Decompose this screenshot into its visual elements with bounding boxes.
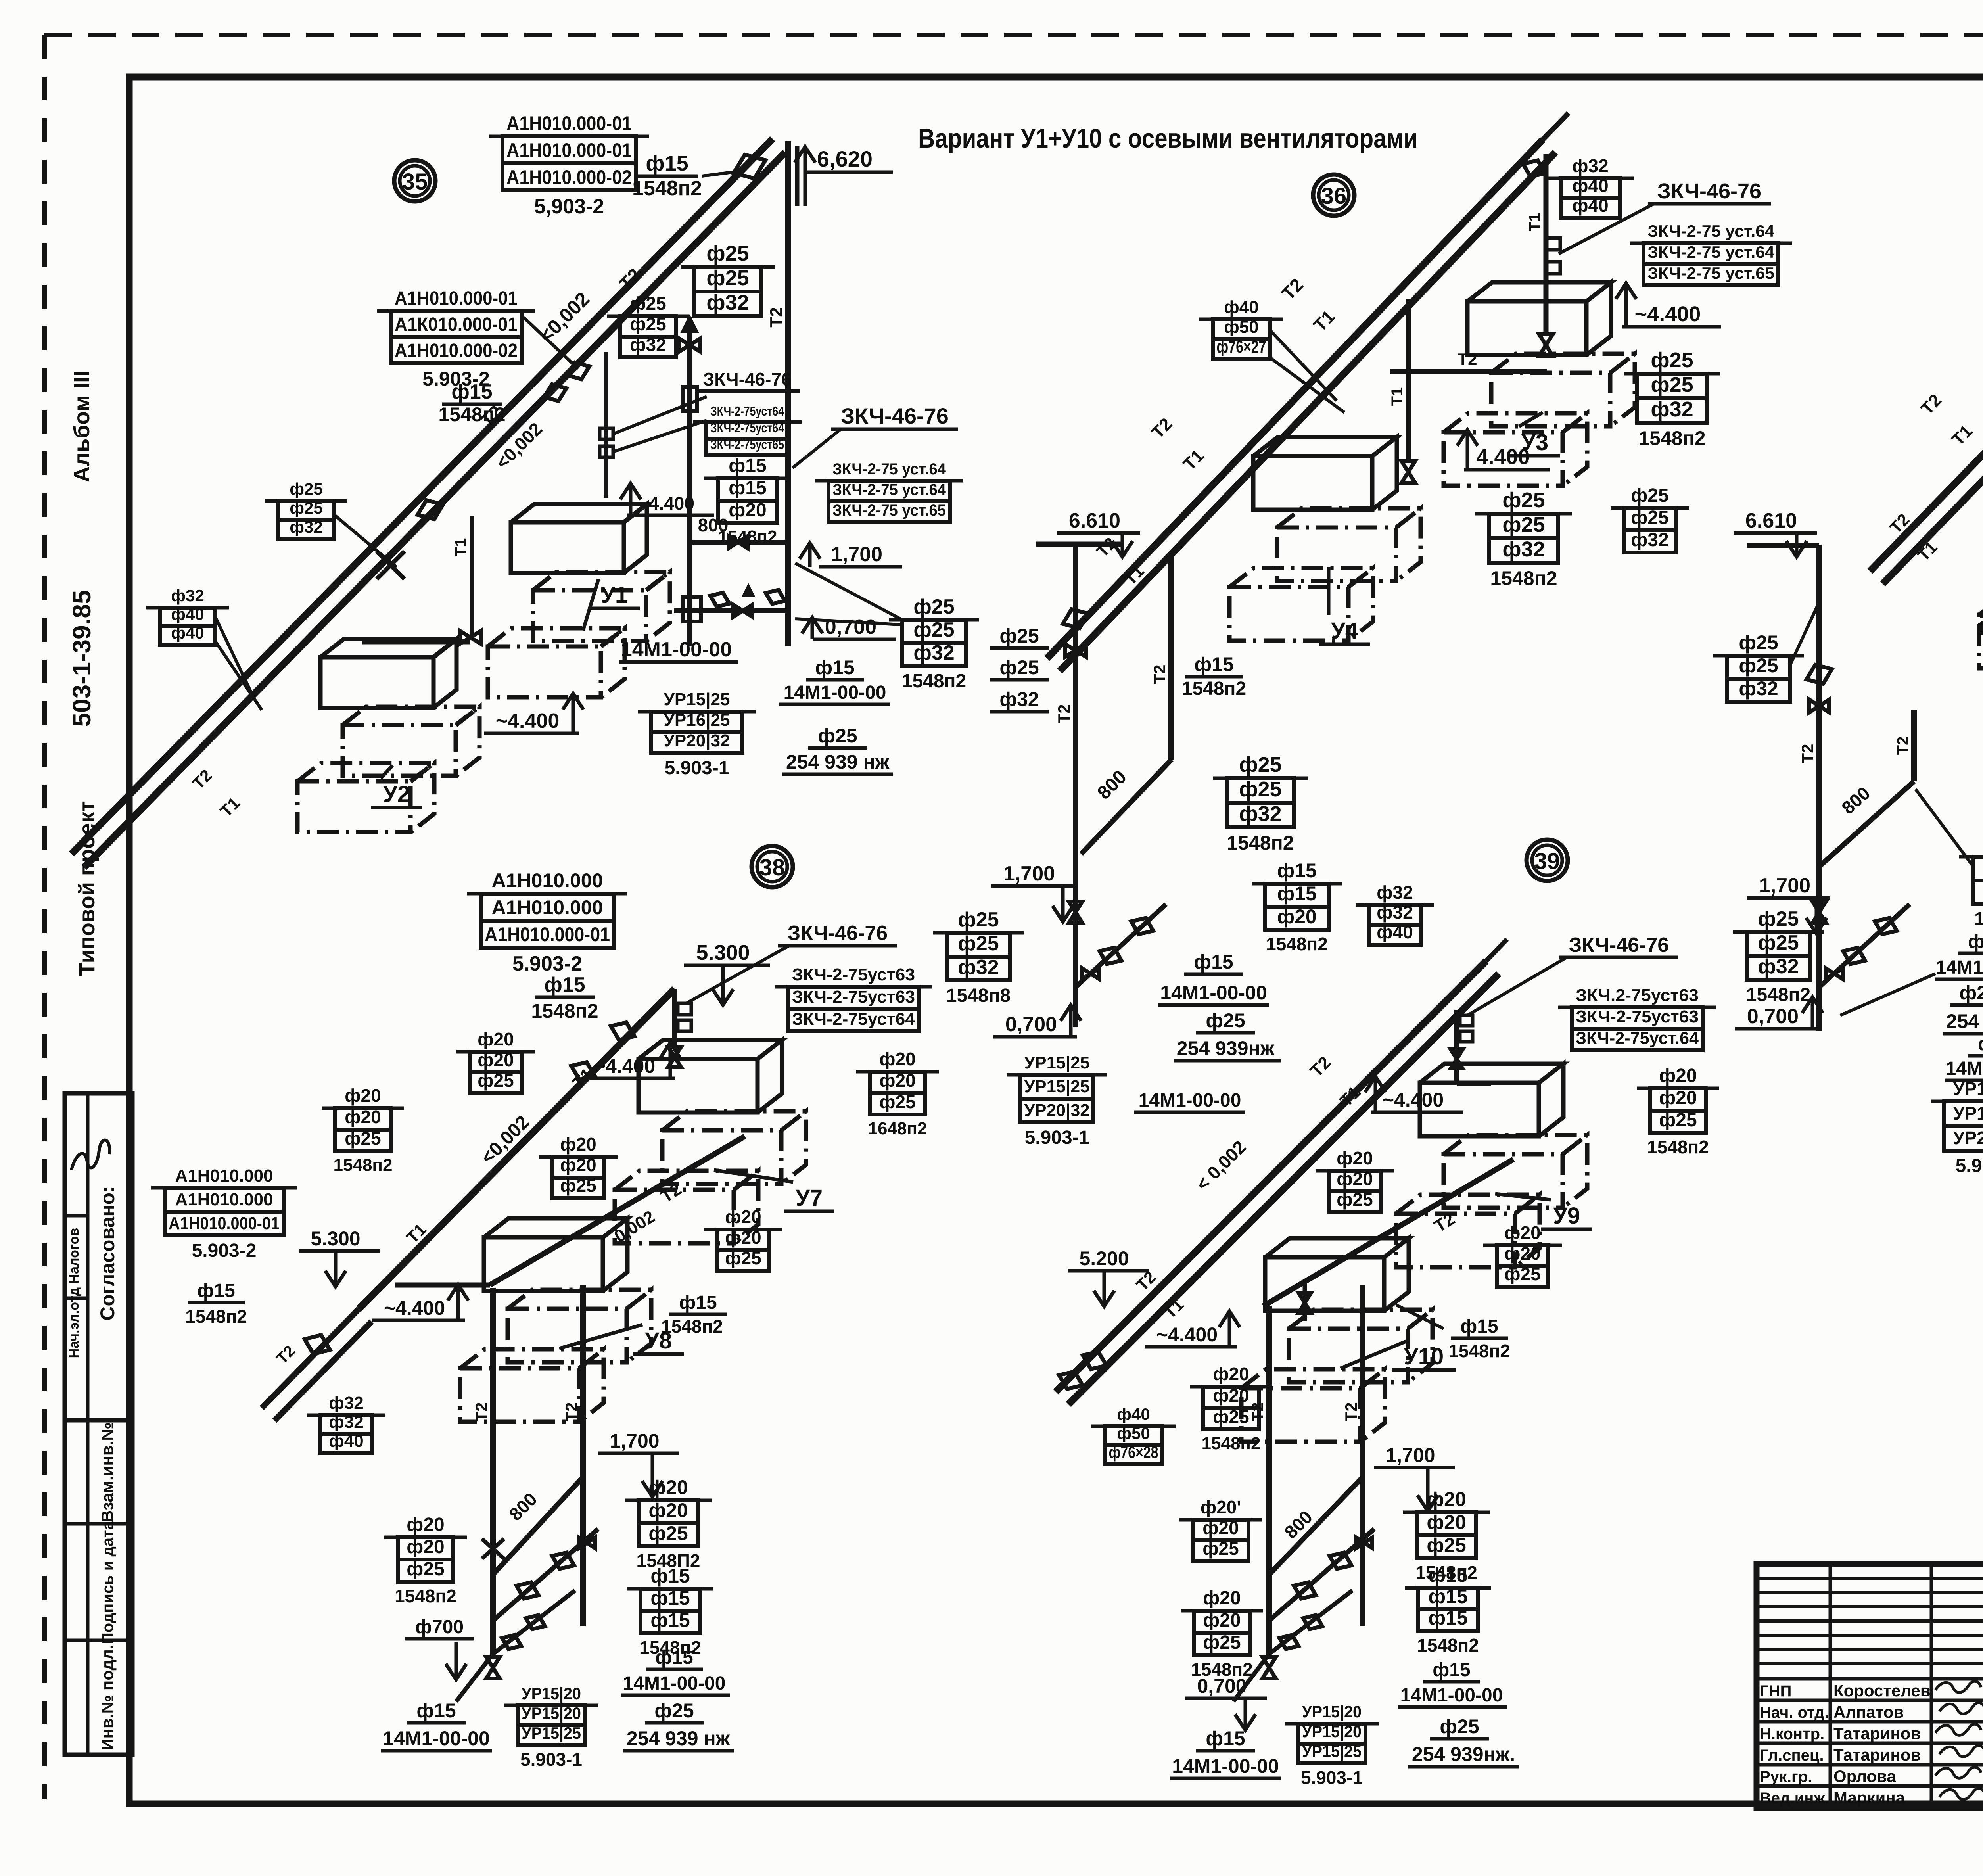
svg-text:ЗКЧ-2-75 уст.64: ЗКЧ-2-75 уст.64 bbox=[832, 481, 946, 499]
svg-text:5.300: 5.300 bbox=[311, 1228, 360, 1250]
svg-text:ф15: ф15 bbox=[729, 455, 766, 476]
svg-text:Подпись и дата: Подпись и дата bbox=[99, 1521, 117, 1644]
svg-text:1548п2: 1548п2 bbox=[1974, 908, 1983, 929]
svg-text:ф15: ф15 bbox=[1460, 1316, 1498, 1337]
svg-text:ф15: ф15 bbox=[1277, 859, 1316, 882]
svg-text:УР15|25: УР15|25 bbox=[664, 690, 730, 710]
svg-text:ф25: ф25 bbox=[1427, 1534, 1466, 1556]
svg-text:ф15: ф15 bbox=[729, 478, 766, 499]
svg-text:А1Н010.000-01: А1Н010.000-01 bbox=[506, 112, 632, 134]
svg-text:ф20: ф20 bbox=[345, 1085, 381, 1106]
svg-text:Т2: Т2 bbox=[472, 1402, 491, 1421]
svg-text:1548п2: 1548п2 bbox=[1448, 1341, 1510, 1361]
svg-text:ф20: ф20 bbox=[407, 1536, 444, 1558]
svg-text:Т1: Т1 bbox=[1526, 213, 1544, 232]
svg-text:Татаринов: Татаринов bbox=[1833, 1724, 1921, 1743]
svg-text:14М1-00-00: 14М1-00-00 bbox=[623, 1673, 726, 1694]
svg-text:ф25: ф25 bbox=[1213, 1406, 1249, 1427]
svg-text:ЗКЧ-46-76: ЗКЧ-46-76 bbox=[1569, 934, 1669, 957]
svg-text:ф15: ф15 bbox=[1428, 1564, 1467, 1586]
svg-text:Инв.№ подл.: Инв.№ подл. bbox=[98, 1644, 117, 1750]
svg-text:0,700: 0,700 bbox=[825, 616, 876, 639]
svg-text:5.903-2: 5.903-2 bbox=[192, 1240, 257, 1261]
svg-text:УР15|20: УР15|20 bbox=[522, 1684, 581, 1703]
svg-text:ф20: ф20 bbox=[560, 1155, 596, 1175]
svg-text:ф32: ф32 bbox=[1758, 955, 1799, 978]
svg-text:Т2: Т2 bbox=[1150, 664, 1169, 684]
svg-text:1,700: 1,700 bbox=[610, 1430, 659, 1452]
svg-text:ф25: ф25 bbox=[290, 480, 322, 498]
svg-text:ф25: ф25 bbox=[958, 932, 999, 955]
svg-text:ф15: ф15 bbox=[655, 1647, 693, 1668]
svg-text:5.903-1: 5.903-1 bbox=[1956, 1155, 1983, 1176]
svg-text:ф20: ф20 bbox=[729, 500, 766, 521]
svg-text:5.903-1: 5.903-1 bbox=[1025, 1127, 1089, 1148]
svg-text:ЗКЧ-2-75уст64: ЗКЧ-2-75уст64 bbox=[710, 404, 784, 418]
svg-text:1548п2: 1548п2 bbox=[1647, 1137, 1709, 1157]
svg-text:14М1-00-00: 14М1-00-00 bbox=[784, 682, 886, 703]
svg-text:Вариант У1+У10 с осевыми венти: Вариант У1+У10 с осевыми вентиляторами bbox=[918, 123, 1418, 153]
svg-text:254 939 нж: 254 939 нж bbox=[786, 751, 890, 773]
svg-text:ф25: ф25 bbox=[1651, 348, 1693, 372]
svg-text:Алпатов: Алпатов bbox=[1833, 1703, 1904, 1721]
svg-text:ЗКЧ-2-75уст.64: ЗКЧ-2-75уст.64 bbox=[1576, 1028, 1699, 1048]
svg-text:0,700: 0,700 bbox=[1005, 1013, 1057, 1036]
svg-text:Маркина: Маркина bbox=[1833, 1788, 1905, 1807]
svg-text:ф40: ф40 bbox=[329, 1431, 363, 1451]
svg-text:ф20: ф20 bbox=[478, 1049, 514, 1070]
svg-text:А1Н010.000-02: А1Н010.000-02 bbox=[506, 166, 632, 188]
svg-text:ф25: ф25 bbox=[1739, 654, 1778, 677]
svg-text:1,700: 1,700 bbox=[1003, 862, 1055, 885]
svg-text:1548п2: 1548п2 bbox=[661, 1316, 723, 1337]
svg-text:У7: У7 bbox=[796, 1185, 823, 1211]
svg-text:ф20: ф20 bbox=[1659, 1065, 1697, 1086]
svg-text:4.400: 4.400 bbox=[1476, 445, 1530, 469]
svg-text:ф40: ф40 bbox=[171, 623, 204, 642]
svg-text:ф20: ф20 bbox=[725, 1227, 761, 1248]
svg-text:Орлова: Орлова bbox=[1833, 1767, 1896, 1786]
svg-text:1548п2: 1548п2 bbox=[902, 671, 966, 692]
svg-text:А1Н010.000: А1Н010.000 bbox=[175, 1190, 273, 1209]
svg-text:ф25: ф25 bbox=[1239, 777, 1281, 801]
svg-text:ф25: ф25 bbox=[1502, 513, 1545, 537]
svg-text:ф25: ф25 bbox=[1758, 931, 1799, 954]
svg-text:Нач.эл.отд Налогов: Нач.эл.отд Налогов bbox=[67, 1228, 82, 1358]
svg-text:ф25: ф25 bbox=[706, 266, 749, 290]
svg-text:ф15: ф15 bbox=[1428, 1607, 1467, 1629]
svg-text:ф25: ф25 bbox=[706, 242, 749, 265]
svg-text:ЗКЧ-2-75уст65: ЗКЧ-2-75уст65 bbox=[710, 437, 784, 452]
svg-text:~4.400: ~4.400 bbox=[1635, 302, 1701, 326]
svg-text:У2: У2 bbox=[383, 781, 410, 807]
svg-text:1548п2: 1548п2 bbox=[1638, 427, 1705, 449]
svg-text:6.610: 6.610 bbox=[1745, 509, 1797, 532]
svg-text:ф32: ф32 bbox=[290, 518, 322, 536]
svg-text:ф15: ф15 bbox=[1968, 931, 1983, 952]
svg-text:УР20|32: УР20|32 bbox=[1953, 1128, 1983, 1148]
svg-text:ф25: ф25 bbox=[913, 595, 954, 618]
svg-text:ф15: ф15 bbox=[1433, 1659, 1470, 1680]
svg-text:ф25: ф25 bbox=[345, 1128, 381, 1149]
svg-text:ф15: ф15 bbox=[416, 1700, 456, 1722]
svg-text:ф32: ф32 bbox=[1377, 882, 1413, 903]
svg-text:ф25: ф25 bbox=[879, 1091, 915, 1112]
svg-text:УР20|32: УР20|32 bbox=[664, 731, 730, 751]
svg-text:ф15: ф15 bbox=[646, 152, 688, 175]
svg-text:ф76×28: ф76×28 bbox=[1109, 1443, 1158, 1462]
svg-text:800: 800 bbox=[698, 515, 729, 535]
svg-text:1548п2: 1548п2 bbox=[334, 1155, 393, 1175]
svg-text:ГНП: ГНП bbox=[1760, 1682, 1791, 1700]
svg-text:УР16|25: УР16|25 bbox=[664, 710, 730, 730]
svg-text:1548п2: 1548п2 bbox=[1227, 832, 1294, 854]
svg-text:ЗКЧ-46-76: ЗКЧ-46-76 bbox=[703, 369, 791, 389]
svg-text:ЗКЧ.2-75уст63: ЗКЧ.2-75уст63 bbox=[1576, 986, 1699, 1005]
svg-text:1548п2: 1548п2 bbox=[1746, 984, 1810, 1005]
svg-text:ф76×27: ф76×27 bbox=[1217, 337, 1266, 357]
svg-text:ф20: ф20 bbox=[879, 1070, 915, 1091]
svg-text:1548п2: 1548п2 bbox=[1490, 567, 1557, 589]
svg-text:ф25: ф25 bbox=[290, 499, 322, 517]
svg-text:ф25: ф25 bbox=[913, 618, 954, 641]
svg-text:ЗКЧ-46-76: ЗКЧ-46-76 bbox=[788, 922, 888, 945]
svg-text:ф32: ф32 bbox=[171, 586, 204, 605]
svg-text:ф25: ф25 bbox=[1758, 907, 1799, 930]
svg-text:14М1-00-00: 14М1-00-00 bbox=[1172, 1755, 1279, 1777]
svg-text:14М1-00-00: 14М1-00-00 bbox=[1160, 982, 1267, 1004]
svg-text:Т2: Т2 bbox=[562, 1402, 581, 1421]
svg-text:Т2: Т2 bbox=[1798, 744, 1817, 763]
svg-text:Т1: Т1 bbox=[452, 538, 470, 557]
svg-text:А1Н010.000: А1Н010.000 bbox=[175, 1166, 273, 1185]
svg-text:1548п2: 1548п2 bbox=[395, 1586, 456, 1606]
svg-text:ф20: ф20 bbox=[1427, 1511, 1466, 1533]
svg-text:254 939нж: 254 939нж bbox=[1946, 1010, 1983, 1032]
svg-text:ЗКЧ-2-75 уст.64: ЗКЧ-2-75 уст.64 bbox=[1647, 243, 1775, 261]
svg-text:ф32: ф32 bbox=[706, 291, 749, 315]
svg-text:6,620: 6,620 bbox=[817, 146, 873, 171]
svg-text:Коростелев: Коростелев bbox=[1833, 1681, 1931, 1700]
svg-text:ф32: ф32 bbox=[630, 334, 666, 355]
svg-text:1548п2: 1548п2 bbox=[438, 403, 505, 426]
svg-text:ф15: ф15 bbox=[1206, 1727, 1245, 1749]
svg-text:38: 38 bbox=[759, 855, 785, 880]
svg-text:ф25: ф25 bbox=[648, 1522, 688, 1544]
svg-text:ф25: ф25 bbox=[630, 293, 666, 314]
svg-text:ф20: ф20 bbox=[1337, 1168, 1373, 1189]
svg-text:ф25: ф25 bbox=[1203, 1632, 1241, 1653]
svg-text:ЗКЧ-2-75 уст.64: ЗКЧ-2-75 уст.64 bbox=[832, 460, 946, 478]
svg-text:А1Н010.000-01: А1Н010.000-01 bbox=[395, 288, 518, 309]
svg-text:ф25: ф25 bbox=[478, 1070, 514, 1091]
svg-text:УР15|25: УР15|25 bbox=[1024, 1077, 1090, 1097]
svg-text:Т1: Т1 bbox=[1388, 387, 1406, 406]
svg-text:ф40: ф40 bbox=[1572, 195, 1608, 216]
svg-text:Т2: Т2 bbox=[1055, 704, 1073, 723]
svg-text:ф25: ф25 bbox=[1659, 1110, 1697, 1131]
svg-text:0,700: 0,700 bbox=[1747, 1005, 1799, 1028]
svg-text:А1Н010.000-01: А1Н010.000-01 bbox=[485, 923, 610, 946]
svg-text:ф15: ф15 bbox=[1277, 882, 1316, 905]
svg-text:УР15|25: УР15|25 bbox=[1302, 1742, 1362, 1761]
svg-text:~4.400: ~4.400 bbox=[496, 710, 560, 733]
svg-text:36: 36 bbox=[1321, 183, 1347, 209]
svg-text:ф25: ф25 bbox=[1337, 1189, 1373, 1210]
svg-text:ф15: ф15 bbox=[650, 1565, 690, 1587]
svg-text:1548п2: 1548п2 bbox=[1202, 1434, 1261, 1453]
svg-text:ф15: ф15 bbox=[679, 1292, 717, 1313]
svg-text:503-1-39.85: 503-1-39.85 bbox=[67, 590, 96, 727]
svg-text:ф32: ф32 bbox=[1572, 155, 1608, 176]
svg-text:Т2: Т2 bbox=[767, 307, 786, 327]
svg-text:1548п2: 1548п2 bbox=[632, 177, 702, 200]
svg-text:ф20: ф20 bbox=[407, 1514, 444, 1535]
svg-text:ф20: ф20 bbox=[560, 1134, 596, 1155]
svg-text:ф40: ф40 bbox=[171, 605, 204, 623]
svg-text:1548п2: 1548п2 bbox=[1977, 618, 1983, 639]
svg-text:ф15: ф15 bbox=[544, 973, 585, 996]
svg-text:ф32: ф32 bbox=[1377, 902, 1413, 923]
svg-text:ф20: ф20 bbox=[1213, 1385, 1249, 1406]
svg-text:ф25: ф25 bbox=[1502, 488, 1545, 512]
svg-text:ЗКЧ-2-75уст63: ЗКЧ-2-75уст63 bbox=[1576, 1007, 1699, 1026]
svg-text:ф50: ф50 bbox=[1224, 317, 1258, 337]
svg-text:ф20: ф20 bbox=[1213, 1364, 1249, 1384]
svg-text:ф25: ф25 bbox=[999, 625, 1039, 647]
svg-text:254 939нж: 254 939нж bbox=[1177, 1037, 1275, 1059]
svg-text:ф25: ф25 bbox=[560, 1175, 596, 1196]
svg-text:Вед.инж.: Вед.инж. bbox=[1760, 1790, 1830, 1807]
svg-text:Нач. отд.: Нач. отд. bbox=[1760, 1704, 1829, 1721]
svg-text:ф25: ф25 bbox=[1440, 1715, 1479, 1738]
svg-text:А1Н010.000-01: А1Н010.000-01 bbox=[506, 139, 632, 161]
svg-text:1,700: 1,700 bbox=[1385, 1444, 1435, 1466]
svg-text:ф20: ф20 bbox=[1504, 1222, 1540, 1243]
svg-text:Н.контр.: Н.контр. bbox=[1760, 1725, 1824, 1743]
svg-text:ф32: ф32 bbox=[329, 1393, 363, 1413]
svg-text:Согласовано:: Согласовано: bbox=[96, 1186, 119, 1320]
svg-text:14М1-00-00: 14М1-00-00 bbox=[1946, 1058, 1983, 1079]
svg-text:Татаринов: Татаринов bbox=[1833, 1746, 1921, 1764]
svg-text:ф15: ф15 bbox=[1978, 1034, 1983, 1055]
svg-text:Т2: Т2 bbox=[1248, 1402, 1267, 1421]
svg-text:ф20: ф20 bbox=[1337, 1148, 1373, 1168]
svg-text:ЗКЧ-2-75 уст.65: ЗКЧ-2-75 уст.65 bbox=[1647, 264, 1774, 282]
svg-text:Т2: Т2 bbox=[1458, 350, 1477, 368]
svg-text:ЗКЧ-2-75 уст.65: ЗКЧ-2-75 уст.65 bbox=[832, 502, 946, 519]
svg-text:1548п2: 1548п2 bbox=[1417, 1635, 1479, 1655]
svg-text:5,903-2: 5,903-2 bbox=[534, 195, 604, 218]
svg-text:ф25: ф25 bbox=[654, 1700, 694, 1722]
svg-text:ф25: ф25 bbox=[407, 1559, 444, 1580]
svg-text:ф32: ф32 bbox=[958, 956, 999, 979]
svg-text:ф40: ф40 bbox=[1117, 1405, 1150, 1423]
svg-text:Гл.спец.: Гл.спец. bbox=[1760, 1747, 1824, 1764]
svg-text:ф20: ф20 bbox=[1504, 1243, 1540, 1264]
svg-text:УР15|20: УР15|20 bbox=[1302, 1702, 1362, 1721]
svg-text:ЗКЧ-46-76: ЗКЧ-46-76 bbox=[1657, 179, 1761, 203]
svg-text:ф15: ф15 bbox=[451, 380, 492, 403]
svg-text:ф32: ф32 bbox=[1239, 802, 1281, 826]
svg-text:ф20: ф20 bbox=[1277, 905, 1316, 928]
svg-text:39: 39 bbox=[1534, 848, 1560, 874]
svg-text:ф32: ф32 bbox=[1739, 677, 1778, 700]
svg-text:ф32: ф32 bbox=[1502, 537, 1545, 561]
svg-text:ф40: ф40 bbox=[1377, 922, 1413, 942]
svg-text:ф15: ф15 bbox=[815, 656, 854, 679]
svg-text:ф15: ф15 bbox=[1428, 1585, 1467, 1607]
svg-text:ф25: ф25 bbox=[1631, 507, 1668, 528]
svg-text:ф20: ф20 bbox=[1427, 1488, 1466, 1510]
svg-text:1548п8: 1548п8 bbox=[946, 985, 1011, 1006]
svg-text:1548п2: 1548п2 bbox=[185, 1306, 247, 1327]
svg-text:1,700: 1,700 bbox=[1759, 874, 1810, 897]
svg-text:УР20|32: УР20|32 bbox=[1024, 1101, 1090, 1120]
svg-text:ЗКЧ-2-75 уст.64: ЗКЧ-2-75 уст.64 bbox=[1647, 222, 1775, 240]
svg-text:Рук.гр.: Рук.гр. bbox=[1760, 1768, 1812, 1786]
svg-text:ЗКЧ-2-75уст63: ЗКЧ-2-75уст63 bbox=[792, 965, 915, 984]
svg-text:5.200: 5.200 bbox=[1079, 1247, 1129, 1270]
svg-text:ф15: ф15 bbox=[197, 1280, 235, 1301]
svg-text:У1: У1 bbox=[601, 582, 628, 608]
svg-text:ф40: ф40 bbox=[1224, 297, 1258, 317]
svg-text:14М1-00-00: 14М1-00-00 bbox=[1400, 1685, 1503, 1706]
svg-text:14М1-00-00: 14М1-00-00 bbox=[383, 1727, 490, 1749]
svg-text:ф15: ф15 bbox=[650, 1609, 690, 1631]
svg-text:ф32: ф32 bbox=[1631, 529, 1668, 551]
svg-text:ф700: ф700 bbox=[415, 1617, 464, 1638]
svg-text:14М1-00-00: 14М1-00-00 bbox=[1139, 1090, 1241, 1111]
svg-text:ф20: ф20 bbox=[648, 1476, 688, 1498]
svg-text:ф15: ф15 bbox=[1194, 653, 1233, 675]
svg-text:1,700: 1,700 bbox=[831, 543, 882, 566]
svg-text:5.903-2: 5.903-2 bbox=[512, 952, 582, 975]
svg-text:ф25: ф25 bbox=[1504, 1264, 1540, 1284]
svg-text:УР15|25: УР15|25 bbox=[1024, 1053, 1090, 1073]
svg-text:6.610: 6.610 bbox=[1069, 509, 1120, 532]
svg-text:ф32: ф32 bbox=[1651, 397, 1693, 421]
svg-text:УР15|20: УР15|20 bbox=[1302, 1722, 1362, 1741]
svg-text:ЗКЧ-2-75уст63: ЗКЧ-2-75уст63 bbox=[792, 987, 915, 1007]
svg-text:14М1-00-00: 14М1-00-00 bbox=[621, 638, 732, 661]
svg-text:УР15|25: УР15|25 bbox=[522, 1724, 581, 1743]
svg-text:ф20: ф20 bbox=[1659, 1088, 1697, 1109]
svg-text:254 939 нж: 254 939 нж bbox=[627, 1727, 730, 1749]
svg-text:ф25: ф25 bbox=[1239, 753, 1281, 777]
svg-text:1648п2: 1648п2 bbox=[868, 1119, 927, 1138]
svg-text:ф20: ф20 bbox=[725, 1207, 761, 1227]
svg-text:А1Н010.000: А1Н010.000 bbox=[492, 896, 603, 919]
svg-text:ф20: ф20 bbox=[1202, 1517, 1239, 1538]
svg-text:Альбом III: Альбом III bbox=[69, 370, 94, 482]
svg-text:ф25: ф25 bbox=[1206, 1009, 1245, 1032]
svg-text:ф50: ф50 bbox=[1117, 1424, 1150, 1442]
svg-text:ф20: ф20 bbox=[879, 1049, 915, 1069]
svg-text:А1Н010.000-02: А1Н010.000-02 bbox=[395, 340, 518, 361]
svg-text:~4.400: ~4.400 bbox=[1156, 1324, 1218, 1346]
svg-text:У10: У10 bbox=[1404, 1344, 1444, 1370]
svg-text:Т2: Т2 bbox=[1894, 737, 1912, 755]
svg-text:ф25: ф25 bbox=[1651, 373, 1693, 397]
svg-text:ф25: ф25 bbox=[1739, 631, 1778, 654]
svg-text:ф20: ф20 bbox=[478, 1029, 514, 1049]
svg-text:У9: У9 bbox=[1553, 1203, 1580, 1229]
svg-text:35: 35 bbox=[402, 169, 428, 195]
svg-text:ф32: ф32 bbox=[999, 688, 1039, 710]
svg-text:ЗКЧ-46-76: ЗКЧ-46-76 bbox=[841, 403, 949, 428]
svg-text:~4.400: ~4.400 bbox=[1383, 1089, 1444, 1111]
svg-text:УР15|25: УР15|25 bbox=[1953, 1103, 1983, 1124]
svg-text:5.903-1: 5.903-1 bbox=[665, 758, 729, 779]
svg-text:ф25: ф25 bbox=[630, 314, 666, 334]
svg-text:ф25: ф25 bbox=[1202, 1538, 1239, 1559]
svg-text:ЗКЧ-2-75уст64: ЗКЧ-2-75уст64 bbox=[792, 1009, 915, 1029]
svg-text:1548п2: 1548п2 bbox=[1266, 934, 1328, 954]
svg-text:ф15: ф15 bbox=[650, 1587, 690, 1609]
svg-text:А1Н010.000: А1Н010.000 bbox=[492, 869, 603, 892]
svg-text:5.903-1: 5.903-1 bbox=[1301, 1767, 1363, 1788]
svg-text:А1К010.000-01: А1К010.000-01 bbox=[395, 314, 518, 335]
svg-text:ф25: ф25 bbox=[818, 725, 857, 747]
svg-text:ф25: ф25 bbox=[725, 1248, 761, 1268]
svg-text:5.300: 5.300 bbox=[696, 941, 750, 965]
svg-text:5.903-1: 5.903-1 bbox=[520, 1749, 582, 1770]
svg-text:ЗКЧ-2-75уст64: ЗКЧ-2-75уст64 bbox=[710, 420, 784, 435]
svg-text:~4.400: ~4.400 bbox=[384, 1297, 445, 1319]
svg-text:УР15|25: УР15|25 bbox=[1953, 1078, 1983, 1099]
svg-text:ф20: ф20 bbox=[1203, 1588, 1241, 1609]
svg-text:ф25: ф25 bbox=[1959, 982, 1983, 1004]
svg-text:ф20: ф20 bbox=[345, 1107, 381, 1127]
svg-text:ф25: ф25 bbox=[958, 908, 999, 931]
svg-text:1548п2: 1548п2 bbox=[1182, 678, 1246, 699]
svg-text:Т2: Т2 bbox=[1342, 1402, 1360, 1421]
svg-text:ф32: ф32 bbox=[913, 641, 954, 664]
svg-text:1548п2: 1548п2 bbox=[531, 1000, 598, 1022]
svg-text:УР15|20: УР15|20 bbox=[522, 1704, 581, 1723]
svg-text:ф20: ф20 bbox=[648, 1499, 688, 1521]
svg-text:ф40: ф40 bbox=[1572, 175, 1608, 196]
svg-text:У4: У4 bbox=[1331, 618, 1358, 644]
svg-text:ф25: ф25 bbox=[999, 656, 1039, 679]
svg-text:Взам.инв.№: Взам.инв.№ bbox=[98, 1422, 117, 1522]
svg-text:ф15: ф15 bbox=[1194, 951, 1233, 973]
svg-text:ф20': ф20' bbox=[1201, 1497, 1241, 1517]
svg-text:14М1-00-00: 14М1-00-00 bbox=[1936, 957, 1983, 978]
svg-text:А1Н010.000-01: А1Н010.000-01 bbox=[169, 1214, 280, 1233]
svg-text:ф20: ф20 bbox=[1203, 1610, 1241, 1631]
svg-text:ф25: ф25 bbox=[1631, 485, 1668, 506]
svg-text:ф32: ф32 bbox=[329, 1412, 363, 1432]
svg-text:254 939нж.: 254 939нж. bbox=[1412, 1743, 1515, 1765]
